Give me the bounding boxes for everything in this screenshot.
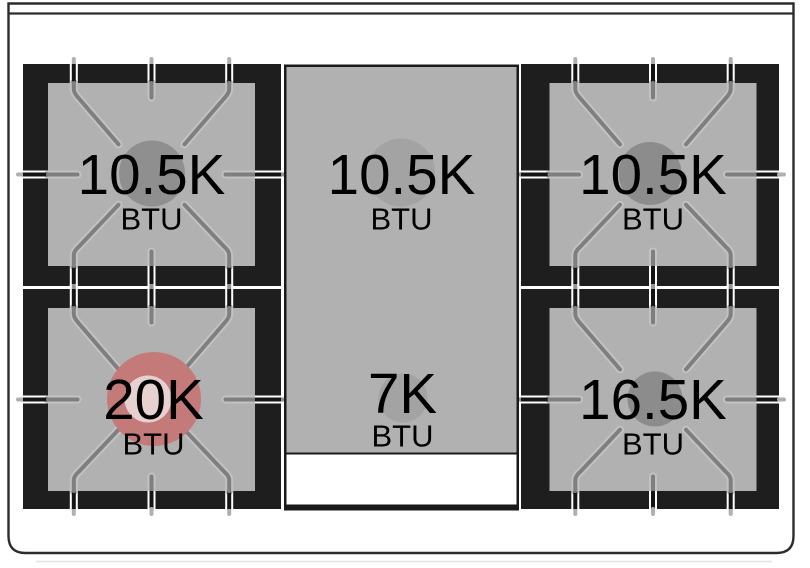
svg-text:16.5K: 16.5K xyxy=(579,368,727,431)
svg-text:BTU: BTU xyxy=(622,202,684,237)
svg-text:BTU: BTU xyxy=(371,202,433,237)
svg-text:10.5K: 10.5K xyxy=(579,143,727,206)
svg-text:7K: 7K xyxy=(368,362,437,425)
svg-text:BTU: BTU xyxy=(372,419,434,454)
svg-text:10.5K: 10.5K xyxy=(78,143,226,206)
svg-text:BTU: BTU xyxy=(123,427,185,462)
svg-text:20K: 20K xyxy=(103,368,204,431)
svg-text:BTU: BTU xyxy=(121,202,183,237)
svg-text:BTU: BTU xyxy=(622,427,684,462)
svg-text:10.5K: 10.5K xyxy=(328,143,476,206)
